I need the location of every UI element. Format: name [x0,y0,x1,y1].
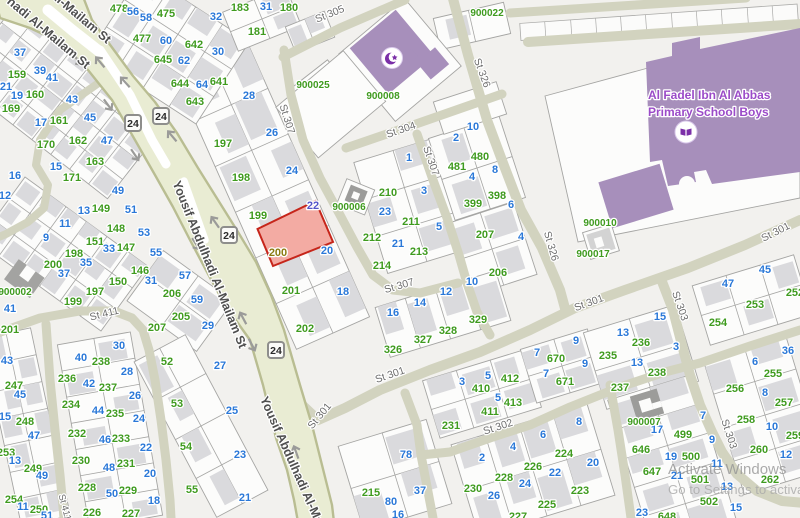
svg-text:8: 8 [762,387,768,399]
svg-text:147: 147 [117,242,135,254]
svg-text:256: 256 [726,383,744,395]
svg-text:900008: 900008 [366,91,400,102]
svg-text:253: 253 [746,299,764,311]
svg-text:212: 212 [363,232,381,244]
svg-text:205: 205 [172,311,190,323]
svg-text:45: 45 [759,264,771,276]
svg-text:53: 53 [171,398,183,410]
svg-text:235: 235 [106,408,124,420]
svg-text:227: 227 [122,508,140,518]
svg-text:480: 480 [471,151,489,163]
svg-text:477: 477 [133,33,151,45]
svg-text:255: 255 [764,368,782,380]
svg-text:37: 37 [14,47,26,59]
svg-text:14: 14 [414,297,427,309]
svg-text:30: 30 [113,340,125,352]
svg-text:57: 57 [179,270,191,282]
svg-text:12: 12 [0,190,11,202]
svg-text:398: 398 [488,190,506,202]
svg-text:252: 252 [786,287,800,299]
svg-text:52: 52 [161,356,173,368]
svg-text:900025: 900025 [296,80,330,91]
svg-text:231: 231 [117,458,135,470]
svg-text:37: 37 [414,485,426,497]
svg-text:327: 327 [414,334,432,346]
svg-text:46: 46 [99,434,111,446]
svg-text:22: 22 [549,467,561,479]
svg-text:180: 180 [280,2,298,14]
svg-text:410: 410 [472,383,490,395]
svg-text:206: 206 [489,267,507,279]
svg-text:48: 48 [103,462,115,474]
svg-text:643: 643 [186,96,204,108]
svg-text:55: 55 [186,484,198,496]
svg-text:2: 2 [453,132,459,144]
svg-text:162: 162 [69,135,87,147]
svg-text:225: 225 [538,499,556,511]
svg-text:233: 233 [112,433,130,445]
svg-text:55: 55 [150,247,162,259]
svg-text:24: 24 [155,111,167,123]
svg-text:237: 237 [99,382,117,394]
svg-text:15: 15 [50,161,62,173]
svg-text:183: 183 [231,2,249,14]
svg-text:78: 78 [400,449,412,461]
svg-text:4: 4 [469,171,476,183]
svg-text:31: 31 [145,275,157,287]
svg-text:62: 62 [178,55,190,67]
svg-text:31: 31 [260,1,272,13]
svg-text:41: 41 [4,303,16,315]
svg-text:169: 169 [2,103,20,115]
svg-text:211: 211 [402,216,420,228]
svg-text:49: 49 [36,470,48,482]
svg-text:197: 197 [86,286,104,298]
svg-text:26: 26 [488,490,500,502]
svg-text:645: 645 [154,54,172,66]
svg-text:21: 21 [239,492,251,504]
svg-text:18: 18 [337,286,349,298]
svg-text:499: 499 [674,429,692,441]
svg-text:42: 42 [83,378,95,390]
svg-text:47: 47 [28,430,40,442]
svg-text:28: 28 [121,366,133,378]
svg-text:326: 326 [384,344,402,356]
svg-text:6: 6 [540,429,546,441]
svg-text:23: 23 [636,507,648,518]
svg-text:647: 647 [643,466,661,478]
svg-text:8: 8 [576,416,582,428]
svg-text:45: 45 [14,389,26,401]
svg-text:10: 10 [766,421,778,433]
svg-text:236: 236 [632,337,650,349]
svg-text:43: 43 [66,94,78,106]
svg-text:59: 59 [191,294,203,306]
svg-text:13: 13 [9,455,21,467]
svg-text:47: 47 [101,135,113,147]
svg-text:254: 254 [709,317,728,329]
svg-text:230: 230 [464,483,482,495]
svg-text:58: 58 [140,12,152,24]
svg-text:16: 16 [392,509,404,518]
svg-text:22: 22 [307,200,319,212]
svg-text:25: 25 [226,405,238,417]
svg-text:80: 80 [385,496,397,508]
svg-text:9: 9 [709,434,715,446]
svg-text:206: 206 [163,288,181,300]
svg-text:8: 8 [492,164,498,176]
svg-text:223: 223 [571,485,589,497]
svg-text:648: 648 [658,511,676,518]
svg-text:16: 16 [9,170,21,182]
svg-text:502: 502 [700,496,718,508]
svg-text:26: 26 [266,127,278,139]
svg-text:215: 215 [362,487,380,499]
svg-text:259: 259 [786,430,800,442]
svg-text:478: 478 [110,3,128,15]
svg-text:1: 1 [406,152,412,164]
svg-text:15: 15 [730,502,742,514]
svg-text:Go to Settings to activa: Go to Settings to activa [668,482,800,497]
svg-text:13: 13 [617,327,629,339]
svg-text:197: 197 [214,138,232,150]
svg-text:228: 228 [78,482,96,494]
svg-text:4: 4 [510,441,517,453]
svg-text:24: 24 [270,345,282,357]
svg-text:257: 257 [775,397,793,409]
svg-text:248: 248 [16,416,34,428]
svg-text:9: 9 [43,232,49,244]
svg-text:49: 49 [112,185,124,197]
svg-text:18: 18 [148,495,160,507]
svg-text:33: 33 [103,243,115,255]
svg-text:24: 24 [223,230,235,242]
svg-text:24: 24 [286,165,299,177]
svg-text:644: 644 [171,78,190,90]
svg-text:22: 22 [140,442,152,454]
svg-text:7: 7 [700,410,706,422]
svg-text:20: 20 [321,245,333,257]
svg-text:230: 230 [72,455,90,467]
svg-text:181: 181 [248,26,266,38]
svg-text:21: 21 [392,238,404,250]
svg-text:224: 224 [555,448,574,460]
svg-text:3: 3 [673,341,679,353]
svg-text:210: 210 [379,187,397,199]
svg-text:226: 226 [83,507,101,518]
svg-text:150: 150 [109,276,127,288]
svg-text:24: 24 [133,413,146,425]
svg-text:45: 45 [84,112,96,124]
svg-text:163: 163 [86,156,104,168]
svg-text:413: 413 [504,397,522,409]
svg-text:29: 29 [202,320,214,332]
svg-text:47: 47 [722,278,734,290]
svg-text:149: 149 [92,203,110,215]
svg-text:475: 475 [157,8,175,20]
svg-text:Al Fadel Ibn Al Abbas: Al Fadel Ibn Al Abbas [648,88,771,102]
svg-text:15: 15 [654,311,666,323]
svg-text:900006: 900006 [332,202,366,213]
svg-text:207: 207 [476,229,494,241]
svg-text:238: 238 [648,367,666,379]
svg-text:159: 159 [8,69,26,81]
svg-text:229: 229 [119,485,137,497]
svg-text:641: 641 [210,76,228,88]
svg-text:39: 39 [34,65,46,77]
svg-text:151: 151 [86,236,104,248]
svg-text:6: 6 [752,356,758,368]
svg-text:51: 51 [125,204,137,216]
svg-text:Activate Windows: Activate Windows [668,461,786,478]
svg-text:10: 10 [466,276,478,288]
svg-text:5: 5 [436,221,442,233]
svg-text:15: 15 [0,411,11,423]
svg-text:481: 481 [448,161,466,173]
svg-text:5: 5 [485,370,491,382]
svg-text:207: 207 [148,322,166,334]
svg-text:23: 23 [379,206,391,218]
svg-text:41: 41 [46,72,58,84]
svg-text:213: 213 [410,246,428,258]
svg-text:412: 412 [501,373,519,385]
svg-text:237: 237 [611,382,629,394]
svg-text:11: 11 [59,218,71,230]
svg-text:235: 235 [599,350,617,362]
svg-text:148: 148 [107,223,125,235]
svg-text:199: 199 [64,296,82,308]
svg-text:20: 20 [587,457,599,469]
svg-text:10: 10 [467,121,479,133]
svg-text:24: 24 [519,478,532,490]
svg-text:900017: 900017 [576,249,610,260]
svg-text:44: 44 [92,405,105,417]
svg-text:37: 37 [58,268,70,280]
svg-text:27: 27 [214,360,226,372]
svg-text:238: 238 [92,356,110,368]
svg-text:900007: 900007 [627,417,661,428]
svg-text:30: 30 [212,46,224,58]
svg-text:36: 36 [782,345,794,357]
svg-text:9: 9 [573,335,579,347]
svg-text:19: 19 [11,90,23,102]
svg-text:329: 329 [469,314,487,326]
svg-text:5: 5 [495,392,501,404]
svg-text:900002: 900002 [0,287,32,298]
svg-text:201: 201 [1,324,19,336]
svg-text:28: 28 [243,90,255,102]
svg-text:234: 234 [62,399,81,411]
svg-text:23: 23 [234,449,246,461]
svg-text:670: 670 [547,353,565,365]
svg-text:9: 9 [582,358,588,370]
svg-text:24: 24 [127,118,139,130]
svg-text:20: 20 [144,468,156,480]
svg-text:56: 56 [127,6,139,18]
svg-text:260: 260 [750,444,768,456]
svg-text:170: 170 [37,139,55,151]
svg-text:43: 43 [1,355,13,367]
svg-text:214: 214 [373,260,392,272]
svg-text:646: 646 [632,444,650,456]
svg-text:900010: 900010 [583,218,617,229]
svg-text:201: 201 [282,285,300,297]
svg-text:53: 53 [138,227,150,239]
svg-text:232: 232 [68,428,86,440]
svg-text:198: 198 [232,172,250,184]
svg-text:160: 160 [26,89,44,101]
svg-text:16: 16 [387,307,399,319]
svg-text:17: 17 [35,117,47,129]
svg-text:236: 236 [58,373,76,385]
svg-text:200: 200 [269,247,287,259]
svg-text:671: 671 [556,376,574,388]
svg-text:60: 60 [160,35,172,47]
svg-text:3: 3 [459,376,465,388]
svg-text:171: 171 [63,172,81,184]
svg-text:64: 64 [196,79,209,91]
svg-text:642: 642 [185,39,203,51]
svg-text:328: 328 [439,325,457,337]
svg-text:161: 161 [50,115,68,127]
svg-text:13: 13 [631,357,643,369]
svg-text:227: 227 [509,511,527,518]
svg-text:13: 13 [78,205,90,217]
svg-text:7: 7 [543,368,549,380]
svg-text:226: 226 [524,461,542,473]
svg-text:228: 228 [495,472,513,484]
svg-text:35: 35 [80,257,92,269]
svg-text:Primary School Boys: Primary School Boys [648,105,769,119]
svg-text:40: 40 [75,352,87,364]
svg-text:6: 6 [508,199,514,211]
svg-text:7: 7 [534,347,540,359]
svg-text:258: 258 [737,414,755,426]
svg-text:399: 399 [464,198,482,210]
svg-text:11: 11 [17,501,29,513]
svg-text:900022: 900022 [470,8,504,19]
svg-text:2: 2 [479,452,485,464]
svg-text:411: 411 [481,406,499,418]
svg-text:4: 4 [518,231,525,243]
svg-text:32: 32 [210,11,222,23]
svg-text:50: 50 [106,488,118,500]
svg-text:54: 54 [180,441,193,453]
svg-text:231: 231 [442,420,460,432]
svg-text:51: 51 [41,510,53,518]
svg-text:199: 199 [249,210,267,222]
svg-text:3: 3 [421,185,427,197]
svg-text:202: 202 [296,323,314,335]
svg-text:12: 12 [440,286,452,298]
svg-text:26: 26 [129,390,141,402]
svg-text:12: 12 [780,449,792,461]
